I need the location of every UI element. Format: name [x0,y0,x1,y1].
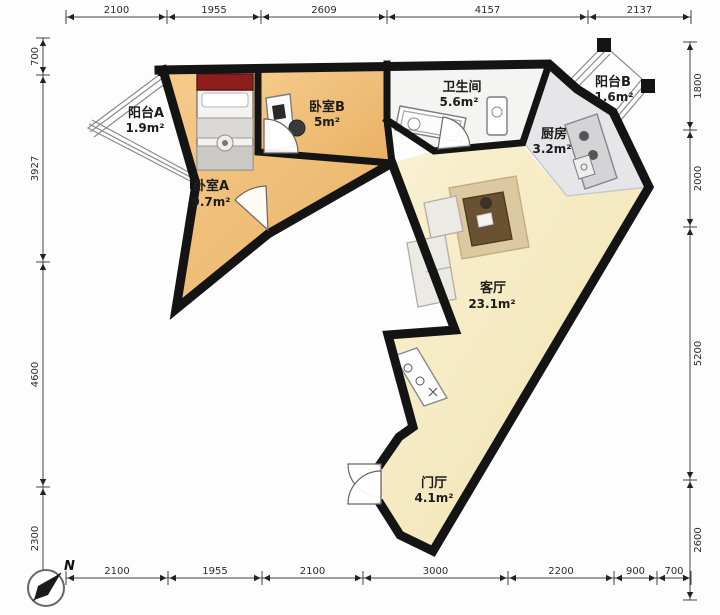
dimension-label: 700 [30,47,41,66]
dimension-arrow-icon [160,575,167,581]
wall-post [641,79,655,93]
dimension-arrow-icon [687,44,693,51]
dimension-label: 4157 [475,5,500,16]
dimension-label: 700 [664,566,683,577]
dimension-label: 2200 [548,566,573,577]
dimension-arrow-icon [254,575,261,581]
area-entry: 4.1m² [414,491,453,505]
area-balcony-b: 1.6m² [594,90,633,104]
dimension-left: 700392746002300 [30,38,50,590]
bed-icon [197,74,253,170]
area-bedroom-b: 5m² [314,115,340,129]
dimension-label: 3000 [423,566,448,577]
dimension-arrow-icon [687,219,693,226]
label-living: 客厅 [480,280,506,296]
label-balcony-b: 阳台B [595,74,631,90]
coffee-table-icon [463,192,512,246]
dimension-arrow-icon [683,14,690,20]
dimension-arrow-icon [355,575,362,581]
dimension-arrow-icon [616,575,623,581]
wall-post [597,38,611,52]
area-bedroom-a: 9.7m² [191,195,230,209]
dimension-arrow-icon [68,14,75,20]
dimension-label: 2137 [627,5,652,16]
area-bathroom: 5.6m² [439,95,478,109]
floor-plan-page: 阳台A 1.9m² 卧室A 9.7m² 卧室B 5m² 卫生间 5.6m² 阳台… [0,0,720,615]
dimension-arrow-icon [683,575,690,581]
dimension-arrow-icon [687,122,693,129]
dimension-label: 1955 [202,566,227,577]
dimension-bottom: 21001955210030002200900700 [66,566,691,585]
floor-plan: 阳台A 1.9m² 卧室A 9.7m² 卧室B 5m² 卫生间 5.6m² 阳台… [0,0,720,615]
label-bedroom-b: 卧室B [309,99,345,115]
dimension-arrow-icon [68,575,75,581]
dimension-label: 3927 [30,156,41,181]
dimension-label: 2100 [104,566,129,577]
compass: N [28,559,75,606]
dimension-label: 2100 [104,5,129,16]
area-balcony-a: 1.9m² [125,121,164,135]
dimension-arrow-icon [40,77,46,84]
dimension-arrow-icon [687,132,693,139]
dimension-right: 1800200052002600 [683,42,704,600]
dimension-label: 2100 [300,566,325,577]
dimension-arrow-icon [687,592,693,599]
compass-north-label: N [64,559,75,574]
dimension-arrow-icon [40,67,46,74]
dimension-label: 1800 [693,73,704,98]
dimension-arrow-icon [379,14,386,20]
label-kitchen: 厨房 [541,126,567,142]
dimension-top: 21001955260941572137 [66,5,691,24]
dimension-arrow-icon [687,472,693,479]
label-entry: 门厅 [421,475,447,491]
dimension-label: 2600 [693,527,704,552]
dimension-arrow-icon [253,14,260,20]
dimension-label: 2609 [311,5,336,16]
dimension-arrow-icon [40,489,46,496]
washbasin-icon [487,97,507,135]
dimension-arrow-icon [510,575,517,581]
dimension-arrow-icon [580,14,587,20]
dimension-arrow-icon [170,575,177,581]
dimension-arrow-icon [606,575,613,581]
dimension-arrow-icon [590,14,597,20]
dimension-arrow-icon [263,14,270,20]
dimension-label: 2000 [693,166,704,191]
dimension-label: 900 [626,566,645,577]
dimension-arrow-icon [40,254,46,261]
dimension-arrow-icon [159,14,166,20]
dimension-label: 4600 [30,362,41,387]
dimension-arrow-icon [500,575,507,581]
dimension-arrow-icon [389,14,396,20]
dimension-arrow-icon [40,40,46,47]
dimension-arrow-icon [687,482,693,489]
label-bathroom: 卫生间 [442,79,481,95]
dimension-arrow-icon [687,229,693,236]
dimension-label: 5200 [693,341,704,366]
dimension-arrow-icon [169,14,176,20]
dimension-label: 2300 [30,526,41,551]
dimension-label: 1955 [201,5,226,16]
label-balcony-a: 阳台A [128,105,164,121]
dimension-arrow-icon [40,479,46,486]
area-living: 23.1m² [468,297,515,311]
dimension-arrow-icon [264,575,271,581]
dimension-arrow-icon [365,575,372,581]
dimension-arrow-icon [40,264,46,271]
dimension-arrow-icon [649,575,656,581]
area-kitchen: 3.2m² [532,142,571,156]
label-bedroom-a: 卧室A [193,178,229,194]
